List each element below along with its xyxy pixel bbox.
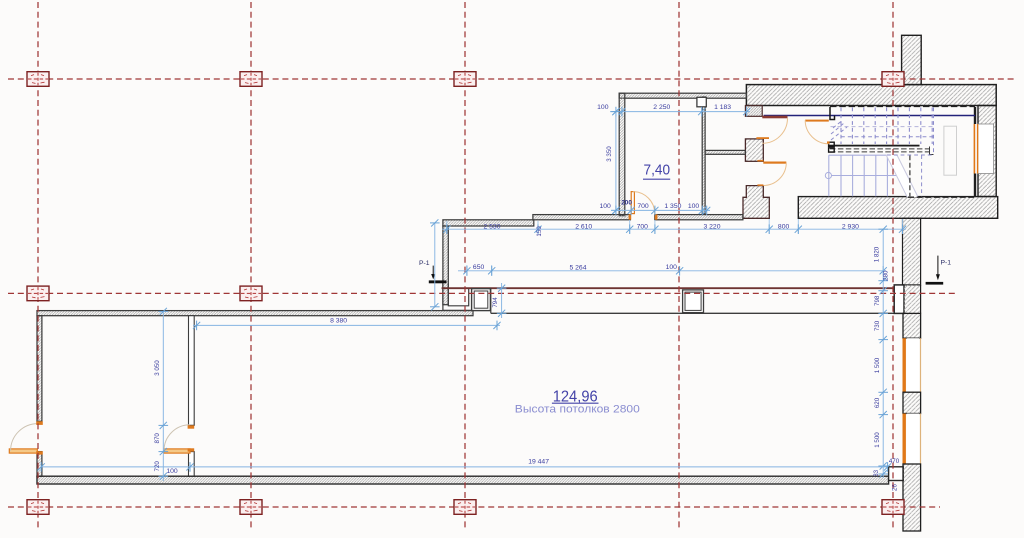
svg-text:700: 700 — [637, 223, 649, 230]
svg-text:19 447: 19 447 — [528, 459, 549, 466]
svg-text:100: 100 — [666, 264, 678, 271]
svg-text:100: 100 — [599, 203, 611, 210]
svg-text:2 610: 2 610 — [575, 223, 592, 230]
svg-text:100: 100 — [166, 468, 178, 475]
svg-text:620: 620 — [874, 397, 881, 408]
svg-text:650: 650 — [473, 264, 485, 271]
svg-text:870: 870 — [154, 433, 161, 444]
svg-text:720: 720 — [154, 461, 161, 472]
svg-text:1 500: 1 500 — [874, 432, 881, 448]
svg-text:2 250: 2 250 — [653, 104, 670, 111]
svg-text:3 350: 3 350 — [606, 146, 613, 162]
svg-text:794: 794 — [492, 297, 499, 308]
svg-text:700: 700 — [637, 203, 649, 210]
svg-text:26: 26 — [892, 484, 899, 491]
svg-text:Высота потолков 2800: Высота потолков 2800 — [515, 403, 640, 415]
svg-text:800: 800 — [778, 223, 790, 230]
svg-text:730: 730 — [874, 320, 881, 331]
svg-text:1 500: 1 500 — [874, 357, 881, 373]
svg-text:Р-1: Р-1 — [419, 260, 430, 267]
svg-text:3 050: 3 050 — [154, 360, 161, 376]
svg-text:150: 150 — [536, 226, 543, 237]
svg-text:P-1: P-1 — [941, 260, 952, 267]
svg-text:33: 33 — [873, 469, 880, 476]
svg-text:3 220: 3 220 — [703, 223, 720, 230]
svg-text:798: 798 — [874, 295, 881, 306]
svg-text:8 380: 8 380 — [330, 318, 347, 325]
svg-text:200: 200 — [621, 199, 632, 206]
svg-text:7,40: 7,40 — [644, 162, 671, 179]
svg-text:1 820: 1 820 — [874, 246, 881, 262]
svg-text:5 264: 5 264 — [569, 264, 586, 271]
svg-text:100: 100 — [688, 203, 700, 210]
svg-text:280: 280 — [883, 270, 890, 281]
svg-text:2 530: 2 530 — [483, 223, 500, 230]
svg-text:1 183: 1 183 — [714, 104, 731, 111]
svg-text:100: 100 — [597, 104, 609, 111]
svg-text:2 930: 2 930 — [842, 223, 859, 230]
svg-text:1 350: 1 350 — [664, 203, 681, 210]
